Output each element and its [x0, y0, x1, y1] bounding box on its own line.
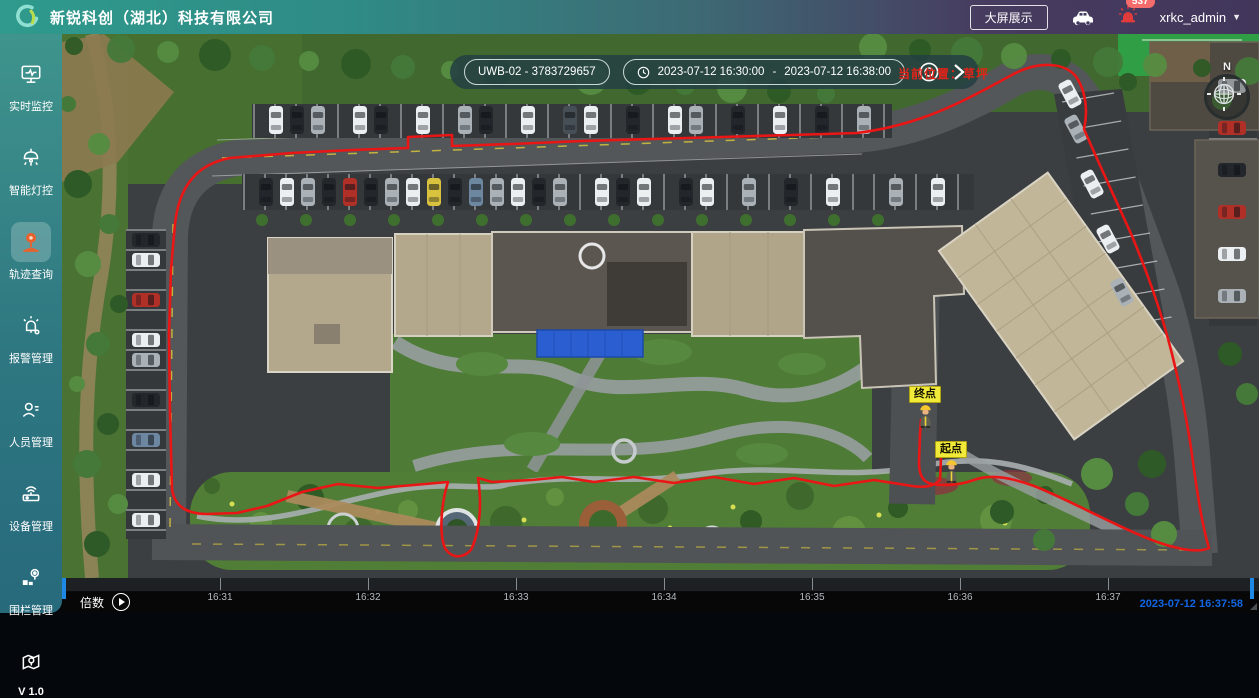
- clock-icon: [637, 66, 650, 79]
- play-button[interactable]: [112, 593, 130, 611]
- timeline-tick-label: 16:32: [355, 592, 380, 603]
- notification-badge: 537: [1126, 0, 1155, 8]
- speed-label: 倍数: [80, 594, 104, 611]
- alarm-notifications-button[interactable]: 537: [1118, 5, 1138, 30]
- timeline-playhead[interactable]: [1250, 578, 1254, 599]
- timeline-tick-label: 16:31: [207, 592, 232, 603]
- worker-icon: [917, 403, 934, 428]
- page-title: 新锐科创（湖北）科技有限公司: [50, 7, 274, 28]
- timeline-tick: [220, 578, 221, 590]
- big-screen-button[interactable]: 大屏展示: [970, 5, 1048, 30]
- sidebar-nav: 实时监控 智能灯控 轨迹查询 报警管理 人员管理: [0, 34, 62, 613]
- header-bar: 新锐科创（湖北）科技有限公司 大屏展示 537 xrkc_adm: [0, 0, 1259, 34]
- track-pin-icon: [18, 229, 44, 255]
- timeline-tick-label: 16:33: [503, 592, 528, 603]
- alert-bell-icon: [19, 314, 43, 338]
- username: xrkc_admin: [1160, 10, 1226, 25]
- map-pin-icon: [19, 650, 43, 674]
- compass-north-label: N: [1204, 62, 1250, 73]
- start-marker: 起点: [927, 441, 975, 483]
- end-marker: 终点: [901, 386, 949, 428]
- chevron-down-icon: ▼: [1232, 12, 1241, 22]
- sidebar-item-personnel-management[interactable]: 人员管理: [0, 390, 62, 450]
- current-position-label: 当前位置：草坪: [898, 65, 989, 82]
- timeline-tick-label: 16:35: [799, 592, 824, 603]
- sidebar-item-track-query[interactable]: 轨迹查询: [0, 222, 62, 282]
- sidebar-item-fence-management[interactable]: 围栏管理: [0, 558, 62, 618]
- time-range-picker[interactable]: 2023-07-12 16:30:00 - 2023-07-12 16:38:0…: [623, 59, 905, 85]
- playback-timeline: 16:3116:3216:3316:3416:3516:3616:37 倍数 2…: [62, 578, 1259, 613]
- device-router-icon: [19, 482, 43, 506]
- current-time-label: 2023-07-12 16:37:58: [1140, 598, 1243, 610]
- alarm-siren-icon: [1118, 5, 1138, 25]
- timeline-tick: [368, 578, 369, 590]
- sidebar-item-device-management[interactable]: 设备管理: [0, 474, 62, 534]
- timeline-ruler[interactable]: 16:3116:3216:3316:3416:3516:3616:37: [62, 578, 1259, 592]
- map-canvas[interactable]: UWB-02 - 3783729657 2023-07-12 16:30:00 …: [62, 34, 1259, 578]
- timeline-tick: [1108, 578, 1109, 590]
- globe-crosshair-icon: [1207, 77, 1241, 111]
- timeline-tick-label: 16:34: [651, 592, 676, 603]
- sidebar-item-smart-lighting[interactable]: 智能灯控: [0, 138, 62, 198]
- worker-icon: [943, 458, 960, 483]
- sidebar-item-alarm-management[interactable]: 报警管理: [0, 306, 62, 366]
- timeline-range-start-handle[interactable]: [62, 578, 66, 599]
- fence-pin-icon: [19, 566, 43, 590]
- person-list-icon: [19, 398, 43, 422]
- aerial-map-scene: [62, 34, 1259, 578]
- resize-grip[interactable]: [1250, 603, 1257, 610]
- compass-control[interactable]: N: [1204, 62, 1250, 120]
- version-label: V 1.0: [18, 686, 44, 698]
- timeline-tick: [664, 578, 665, 590]
- start-marker-label: 起点: [935, 441, 967, 458]
- user-menu[interactable]: xrkc_admin ▼: [1160, 10, 1241, 25]
- sidebar-item-realtime-monitor[interactable]: 实时监控: [0, 54, 62, 114]
- timeline-tick-label: 16:37: [1095, 592, 1120, 603]
- monitor-icon: [19, 62, 43, 86]
- company-logo-icon: [13, 4, 40, 31]
- timeline-tick: [960, 578, 961, 590]
- timeline-tick: [516, 578, 517, 590]
- timeline-tick-label: 16:36: [947, 592, 972, 603]
- lamp-icon: [19, 146, 43, 170]
- compass-dial: [1204, 74, 1250, 120]
- end-marker-label: 终点: [909, 386, 941, 403]
- vehicle-icon[interactable]: [1070, 7, 1096, 27]
- timeline-tick: [812, 578, 813, 590]
- sidebar-item-map[interactable]: [0, 642, 62, 686]
- device-select[interactable]: UWB-02 - 3783729657: [464, 59, 610, 85]
